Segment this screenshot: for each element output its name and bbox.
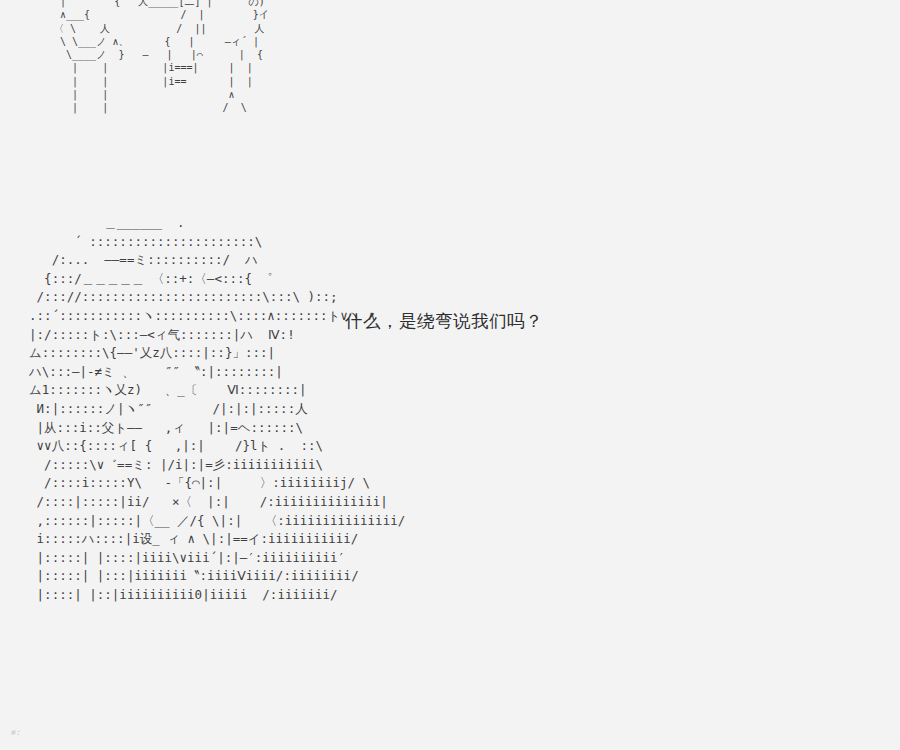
ascii-art-top-fragment: | { 人_____[二]¨| の) ∧___{ / | }イ 〈 \ 人 / …: [54, 0, 269, 115]
ascii-art-character: ＿______ . ´ ::::::::::::::::::::::\ /:..…: [14, 214, 405, 604]
corner-artifact: ≡:: [10, 730, 21, 736]
dialogue-text: 什么，是绕弯说我们吗？: [345, 309, 543, 333]
page: | { 人_____[二]¨| の) ∧___{ / | }イ 〈 \ 人 / …: [0, 0, 900, 750]
